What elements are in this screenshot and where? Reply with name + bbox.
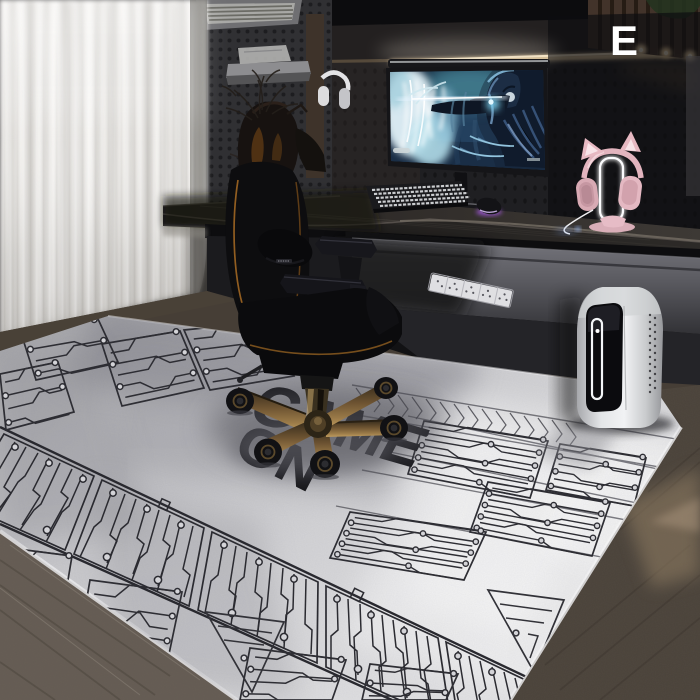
svg-text:E: E: [610, 17, 638, 64]
